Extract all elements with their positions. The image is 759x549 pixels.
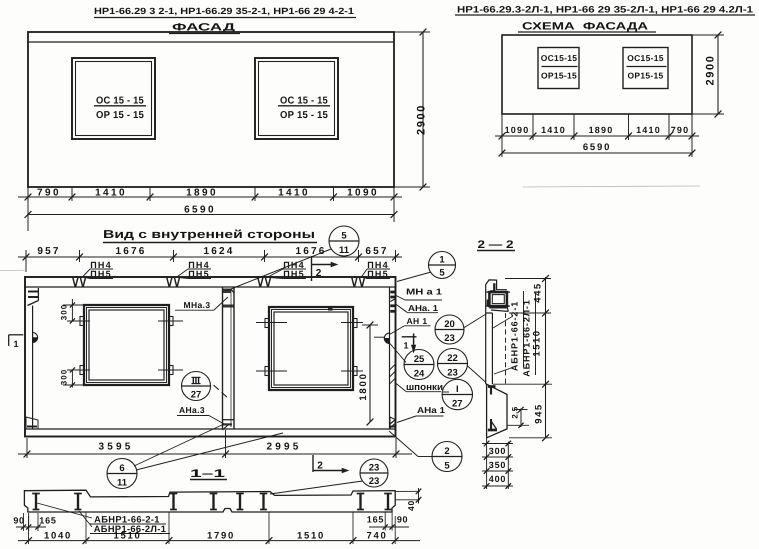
svg-text:1410: 1410 [278, 188, 310, 199]
svg-text:I: I [456, 384, 459, 395]
svg-text:945: 945 [534, 403, 545, 423]
svg-text:40: 40 [406, 500, 416, 511]
svg-text:165: 165 [39, 516, 56, 526]
svg-text:1–1: 1–1 [190, 468, 225, 480]
svg-text:23: 23 [369, 463, 380, 474]
svg-text:2,5: 2,5 [511, 406, 520, 418]
svg-text:ОР15-15: ОР15-15 [541, 71, 577, 81]
svg-text:6: 6 [119, 463, 124, 474]
svg-text:1890: 1890 [589, 125, 614, 135]
svg-text:ОС 15 - 15: ОС 15 - 15 [96, 96, 144, 107]
svg-text:5: 5 [341, 231, 347, 242]
svg-text:ОР15-15: ОР15-15 [627, 71, 663, 81]
svg-text:АНа.3: АНа.3 [179, 405, 205, 415]
svg-text:400: 400 [489, 474, 506, 484]
svg-text:165: 165 [367, 515, 384, 525]
svg-text:ОС 15 - 15: ОС 15 - 15 [280, 96, 328, 107]
svg-text:2 — 2: 2 — 2 [478, 239, 514, 251]
svg-text:3595: 3595 [98, 442, 133, 453]
svg-text:1510: 1510 [532, 329, 543, 356]
svg-text:1: 1 [439, 255, 445, 266]
svg-text:АН 1: АН 1 [407, 316, 428, 326]
svg-text:НР1-66.29.3-2Л-1, НР1-66 29 35: НР1-66.29.3-2Л-1, НР1-66 29 35-2Л-1, НР1… [457, 5, 753, 15]
svg-text:1410: 1410 [636, 125, 661, 135]
svg-text:23: 23 [447, 367, 458, 378]
svg-text:23: 23 [369, 476, 380, 487]
svg-text:ОС15-15: ОС15-15 [627, 53, 664, 63]
svg-text:МН а 1: МН а 1 [406, 287, 442, 297]
svg-text:11: 11 [339, 245, 350, 256]
svg-text:25: 25 [414, 354, 425, 365]
svg-text:1510: 1510 [297, 531, 325, 542]
svg-text:22: 22 [447, 353, 458, 364]
svg-text:МНа.3: МНа.3 [183, 300, 210, 310]
svg-text:790: 790 [671, 125, 690, 135]
svg-text:1890: 1890 [186, 188, 218, 199]
svg-text:740: 740 [367, 531, 388, 542]
svg-text:657: 657 [365, 246, 388, 257]
svg-text:20: 20 [444, 319, 455, 330]
svg-text:957: 957 [37, 246, 60, 257]
svg-text:2: 2 [317, 461, 323, 472]
svg-text:АБНР1-66-2-1: АБНР1-66-2-1 [94, 515, 160, 525]
svg-text:90: 90 [397, 515, 408, 525]
svg-text:11: 11 [117, 477, 128, 488]
svg-text:1090: 1090 [505, 125, 530, 135]
svg-text:90: 90 [13, 516, 24, 526]
svg-text:1410: 1410 [541, 125, 566, 135]
svg-text:2995: 2995 [266, 442, 301, 453]
svg-text:300: 300 [60, 304, 69, 320]
svg-text:27: 27 [452, 399, 463, 410]
svg-text:350: 350 [489, 460, 506, 470]
svg-text:1410: 1410 [95, 188, 127, 199]
svg-text:1800: 1800 [358, 372, 369, 400]
svg-text:АБНР1-66-2Л-1: АБНР1-66-2Л-1 [522, 299, 532, 377]
svg-text:1676: 1676 [115, 246, 146, 257]
svg-text:ОР 15 - 15: ОР 15 - 15 [280, 110, 328, 121]
svg-text:АНа 1: АНа 1 [417, 405, 445, 415]
svg-text:СХЕМА ФАСАДА: СХЕМА ФАСАДА [522, 21, 649, 33]
svg-text:ОР 15 - 15: ОР 15 - 15 [96, 110, 144, 121]
svg-text:1: 1 [403, 341, 408, 351]
svg-text:1676: 1676 [295, 246, 326, 257]
svg-text:445: 445 [533, 282, 544, 302]
svg-text:НР1-66.29 3 2-1, НР1-66.29 35-: НР1-66.29 3 2-1, НР1-66.29 35-2-1, НР1-6… [94, 6, 354, 16]
svg-text:1510: 1510 [114, 531, 142, 542]
svg-text:2900: 2900 [416, 104, 428, 135]
svg-text:5: 5 [439, 267, 445, 278]
svg-text:1624: 1624 [203, 246, 234, 257]
svg-text:1: 1 [13, 339, 18, 349]
svg-text:300: 300 [60, 369, 69, 385]
svg-text:790: 790 [37, 188, 61, 199]
svg-text:6590: 6590 [583, 142, 611, 153]
svg-text:2: 2 [444, 446, 449, 457]
svg-text:АНа. 1: АНа. 1 [408, 303, 438, 313]
svg-text:ОС15-15: ОС15-15 [541, 53, 578, 63]
svg-text:1040: 1040 [44, 531, 72, 542]
svg-text:5: 5 [444, 460, 450, 471]
svg-text:23: 23 [444, 333, 455, 344]
svg-text:6590: 6590 [184, 205, 216, 216]
svg-text:1790: 1790 [207, 531, 235, 542]
svg-text:Вид с внутренней стороны: Вид с внутренней стороны [103, 229, 315, 241]
svg-text:2900: 2900 [705, 55, 717, 86]
svg-text:27: 27 [191, 389, 202, 400]
svg-text:24: 24 [414, 368, 425, 379]
svg-text:1090: 1090 [347, 188, 379, 199]
svg-text:АБНР1-66-2-1: АБНР1-66-2-1 [510, 301, 520, 371]
svg-text:300: 300 [489, 446, 506, 456]
